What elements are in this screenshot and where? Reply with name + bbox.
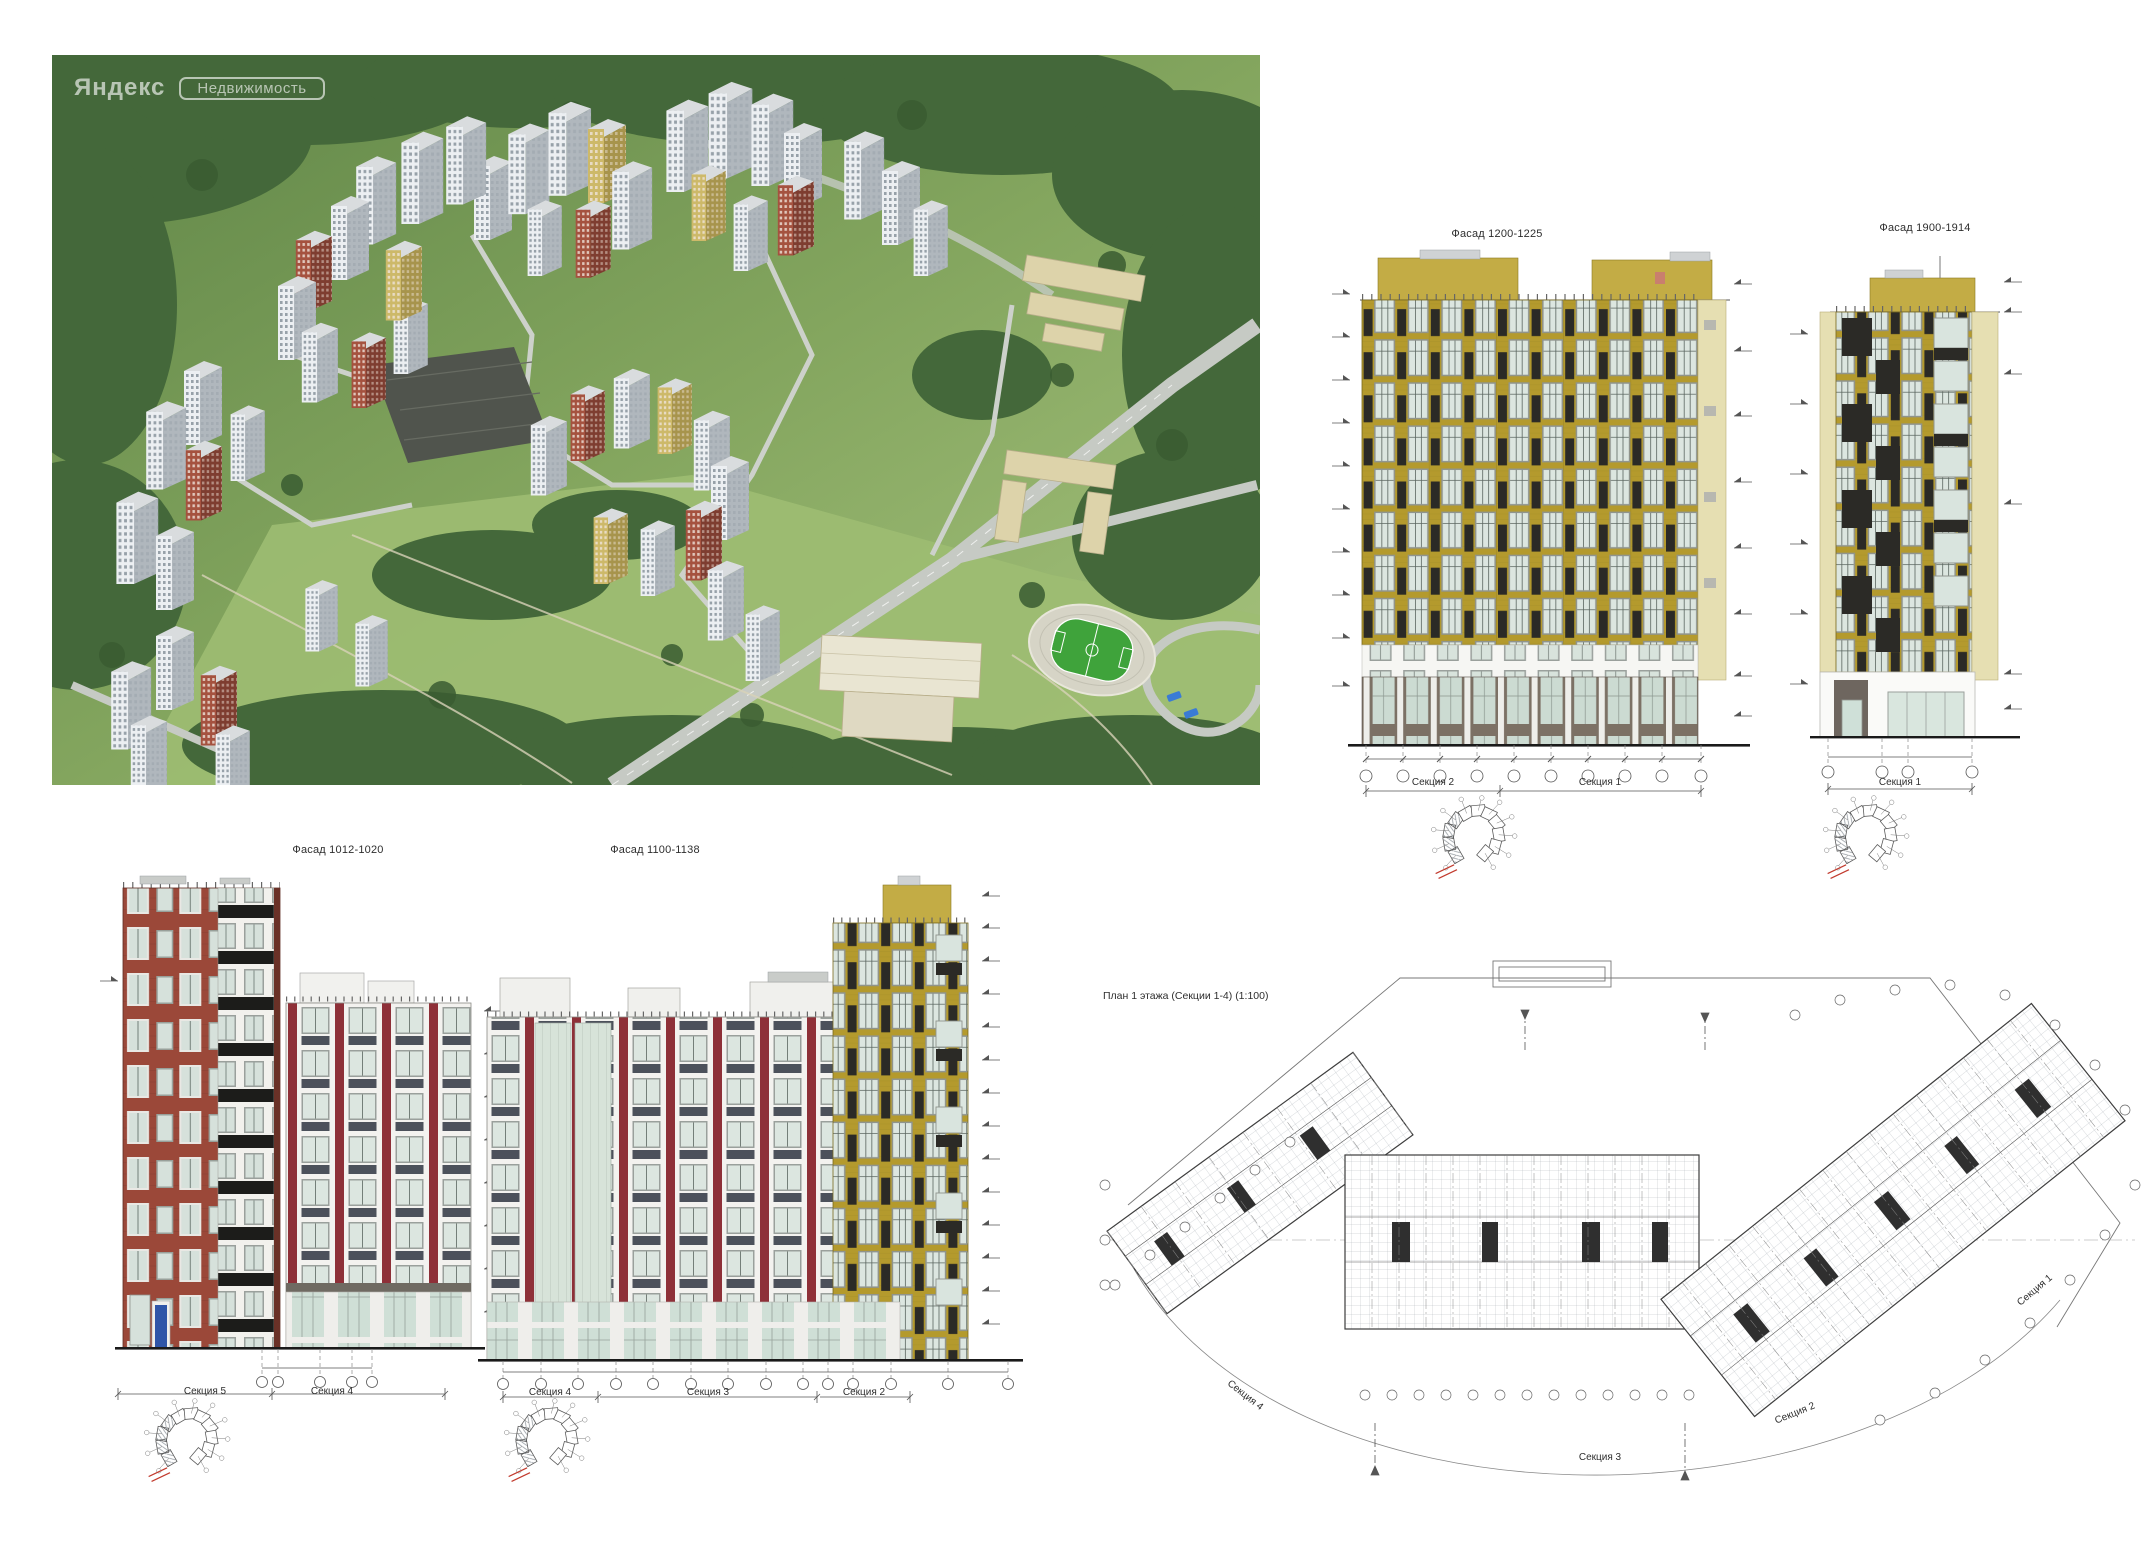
yandex-realty-badge: Недвижимость bbox=[179, 77, 324, 100]
facade-1200-1225-drawing bbox=[1332, 250, 1752, 797]
elevation-marks-right bbox=[1734, 279, 1752, 716]
map-watermark: Яндекс Недвижимость bbox=[74, 74, 325, 102]
facade-1012-1020-title: Фасад 1012-1020 bbox=[248, 844, 428, 856]
keyplan-facade-1900 bbox=[1823, 796, 1909, 879]
aerial-render bbox=[0, 32, 1312, 805]
plan-section-label: Секция 3 bbox=[1540, 1452, 1660, 1463]
elevation-marks-right bbox=[2004, 277, 2022, 709]
section-label: Секция 2 bbox=[804, 1387, 924, 1398]
plan-wing-center bbox=[1345, 1155, 1699, 1329]
section-label: Секция 5 bbox=[145, 1386, 265, 1397]
section-label: Секция 4 bbox=[272, 1386, 392, 1397]
section-label: Секция 3 bbox=[648, 1387, 768, 1398]
facade-1900-1914-drawing bbox=[1790, 256, 2022, 795]
section-label: Секция 2 bbox=[1373, 777, 1493, 788]
keyplan-facade-1200 bbox=[1431, 796, 1517, 879]
elevation-marks-left bbox=[1790, 329, 1808, 684]
section-label: Секция 4 bbox=[490, 1387, 610, 1398]
facade-1012-1020-drawing bbox=[100, 876, 502, 1400]
facade-1200-1225-title: Фасад 1200-1225 bbox=[1377, 228, 1617, 240]
section-label: Секция 1 bbox=[1540, 777, 1660, 788]
yandex-logo-text: Яндекс bbox=[74, 74, 165, 102]
floor-plan-title: План 1 этажа (Секции 1-4) (1:100) bbox=[1103, 990, 1423, 1002]
facade-1100-1138-title: Фасад 1100-1138 bbox=[565, 844, 745, 856]
presentation-sheet: Яндекс Недвижимость Фасад 1200-1225 Фаса… bbox=[0, 0, 2153, 1559]
section-label: Секция 1 bbox=[1840, 777, 1960, 788]
elevation-marks-left bbox=[1332, 289, 1350, 686]
facade-1100-1138-drawing bbox=[478, 876, 1023, 1403]
elevation-marks-right bbox=[982, 891, 1000, 1324]
keyplan-facade-1012 bbox=[144, 1399, 230, 1482]
keyplan-facade-1100 bbox=[504, 1399, 590, 1482]
plan-wing-right bbox=[1661, 1004, 2125, 1417]
facade-1900-1914-title: Фасад 1900-1914 bbox=[1825, 222, 2025, 234]
